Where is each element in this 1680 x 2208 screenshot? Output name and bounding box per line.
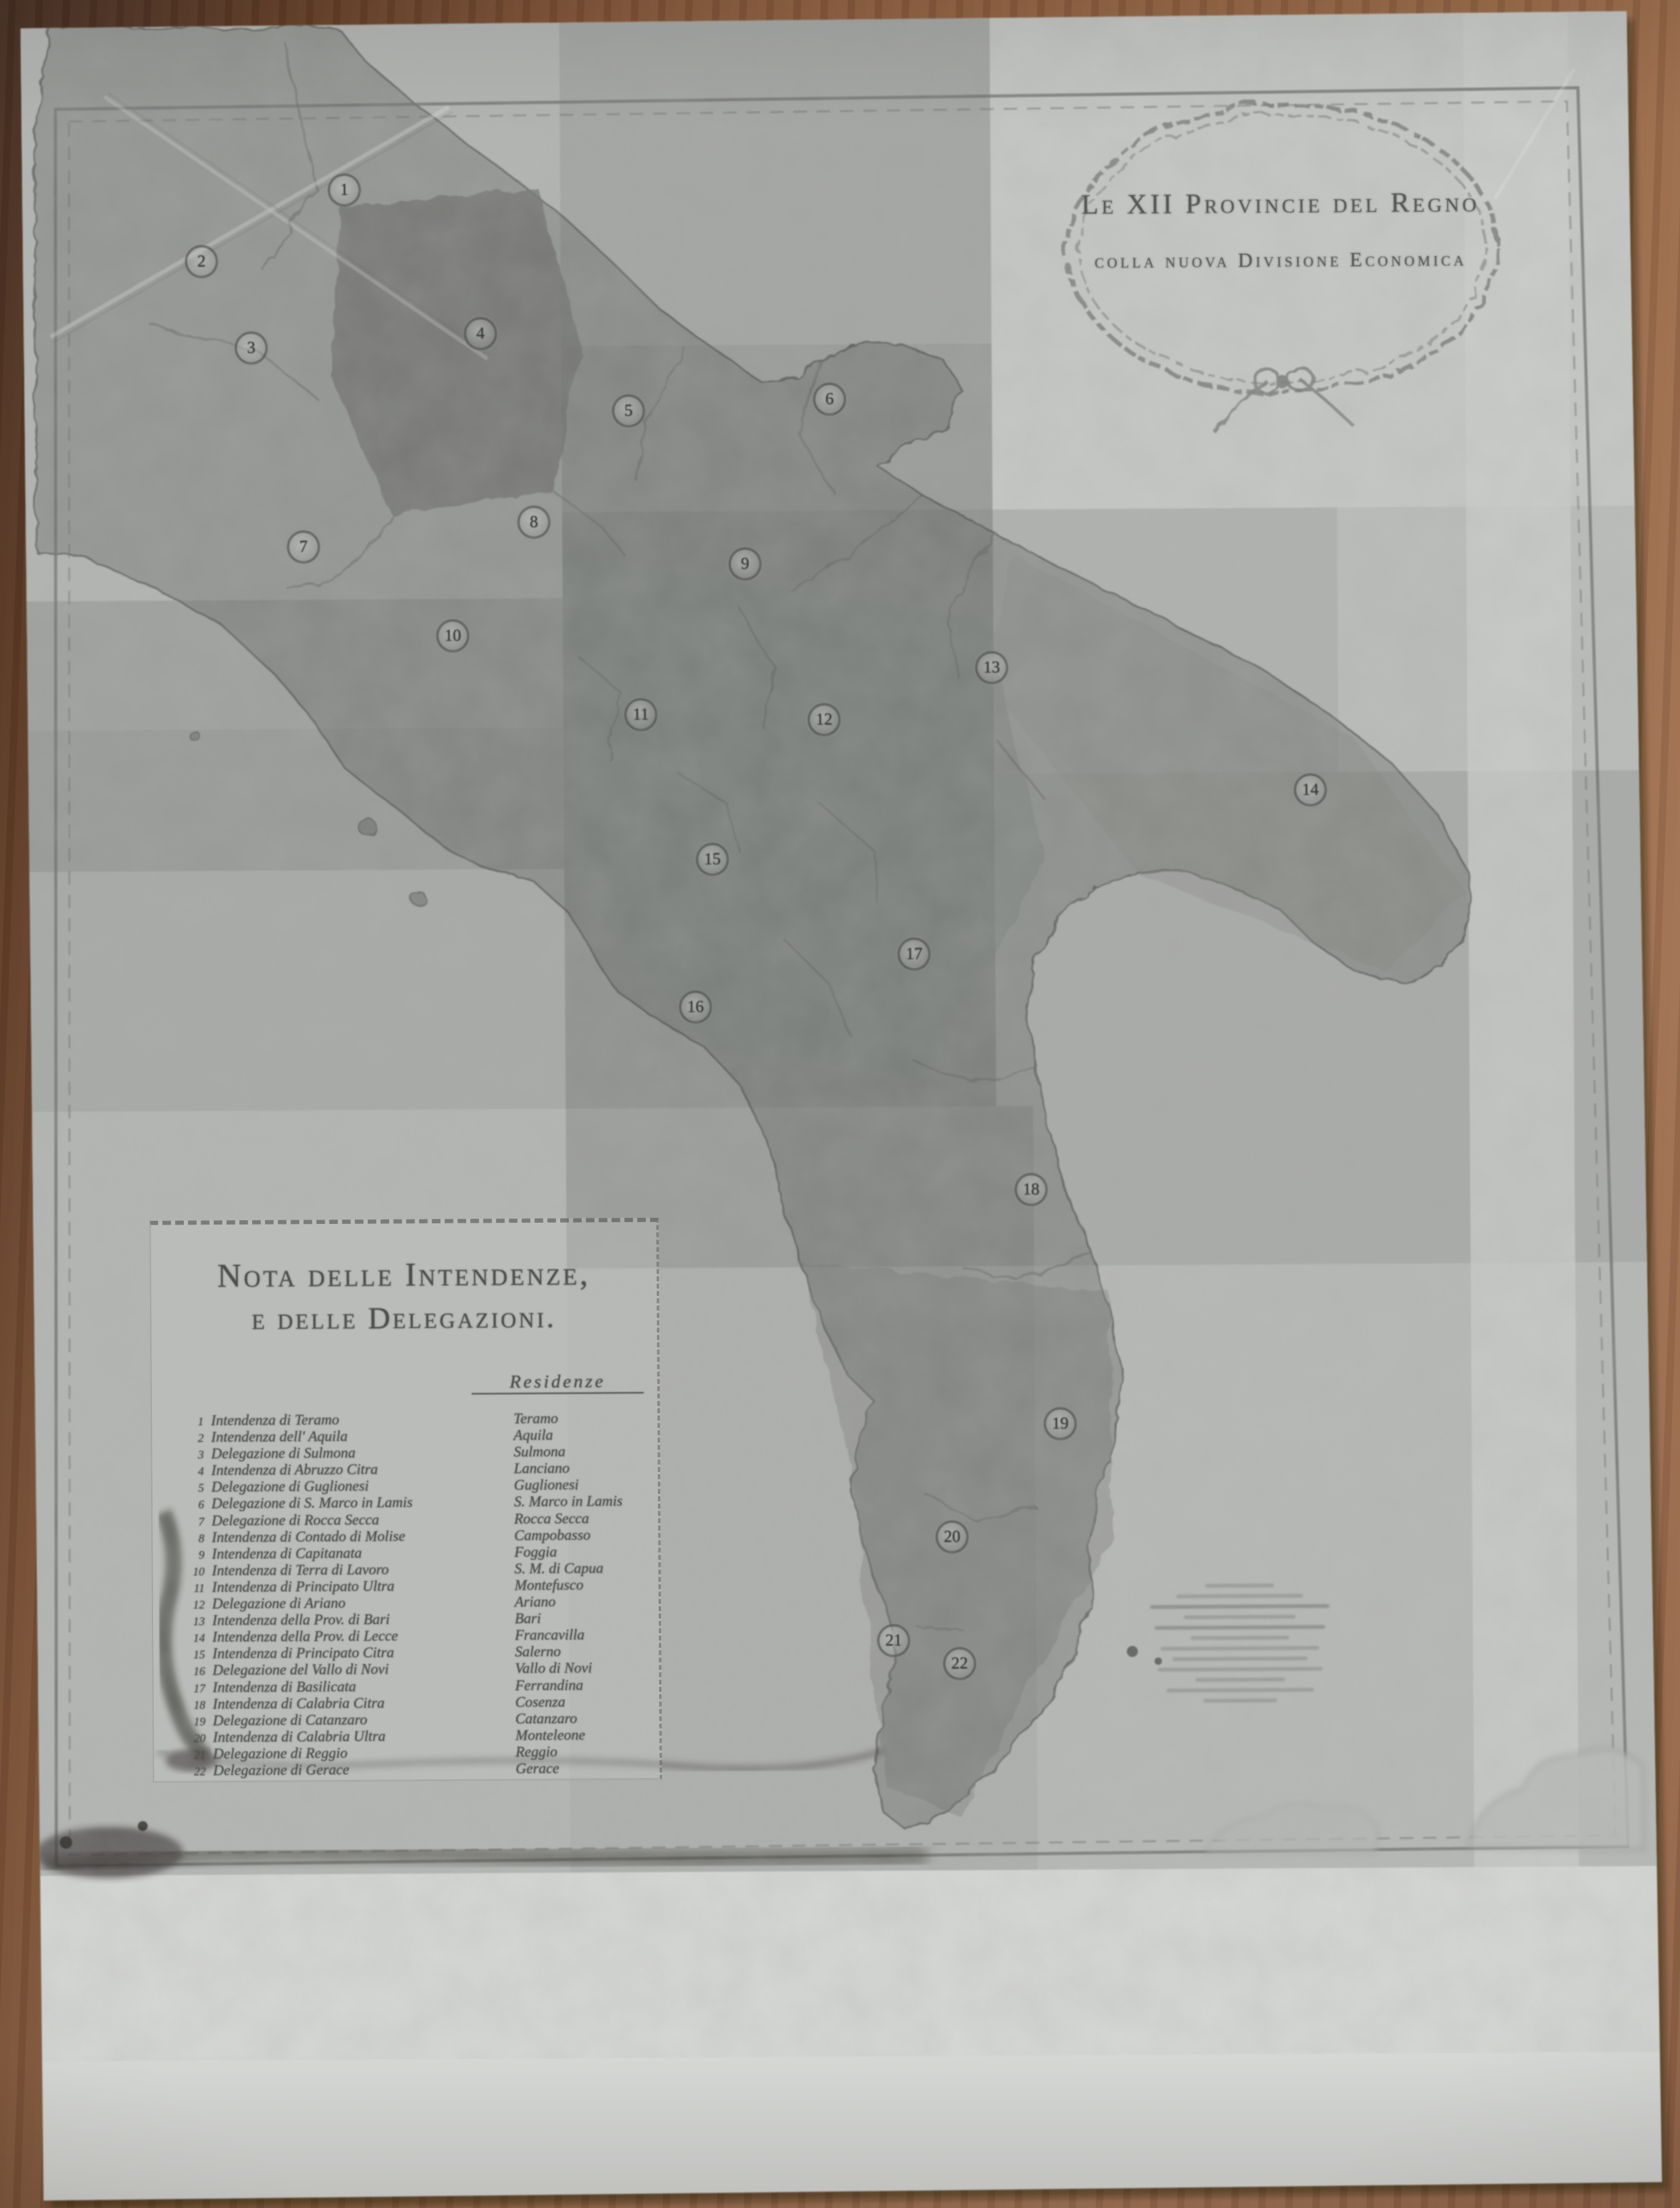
province-number-marker: 20 xyxy=(935,1520,969,1554)
province-number-marker: 11 xyxy=(624,698,657,731)
province-number-marker: 22 xyxy=(943,1647,976,1680)
legend-row-residence: Rocca Secca xyxy=(514,1510,656,1527)
legend-row-number: 14 xyxy=(183,1632,205,1646)
legend-row-number: 8 xyxy=(182,1532,204,1546)
legend-row-number: 9 xyxy=(182,1549,204,1562)
legend-row-residence: Foggia xyxy=(514,1544,656,1561)
legend-row-residence: Monteleone xyxy=(515,1727,657,1744)
illegible-text-block xyxy=(1138,1576,1343,1784)
legend-row-name: Intendenza di Capitanata xyxy=(212,1544,514,1563)
legend-row-residence: Sulmona xyxy=(513,1444,655,1461)
legend-rows: 1Intendenza di TeramoTeramo2Intendenza d… xyxy=(181,1410,657,1780)
legend-row-number: 13 xyxy=(183,1615,205,1629)
legend-row-number: 11 xyxy=(183,1582,205,1595)
province-number-marker: 1 xyxy=(328,173,361,207)
legend-row-name: Delegazione di Guglionesi xyxy=(212,1478,514,1496)
map-title-line1: Le XII Provincie del Regno xyxy=(1063,185,1497,220)
legend-row-name: Intendenza di Abruzzo Citra xyxy=(212,1461,514,1480)
legend-box: Nota delle Intendenze, e delle Delegazio… xyxy=(149,1218,662,1783)
legend-row-number: 15 xyxy=(183,1649,205,1662)
legend-row-name: Intendenza di Basilicata xyxy=(213,1678,515,1696)
legend-row-number: 20 xyxy=(183,1732,205,1745)
legend-row-number: 5 xyxy=(182,1482,204,1496)
legend-row-name: Delegazione del Vallo di Novi xyxy=(213,1661,515,1680)
legend-row-name: Delegazione di S. Marco in Lamis xyxy=(212,1495,514,1513)
legend-row-residence: Francavilla xyxy=(515,1627,656,1644)
legend-row-residence: Guglionesi xyxy=(514,1477,656,1494)
province-number-marker: 21 xyxy=(877,1624,910,1657)
legend-row-residence: Campobasso xyxy=(514,1527,656,1544)
province-number-marker: 14 xyxy=(1294,773,1327,806)
province-number-marker: 9 xyxy=(728,547,761,581)
legend-row-residence: Aquila xyxy=(513,1427,655,1444)
legend-column-header-residenze: Residenze xyxy=(472,1371,644,1395)
province-number-marker: 16 xyxy=(679,990,712,1023)
legend-row-number: 1 xyxy=(181,1415,204,1429)
legend-row-number: 21 xyxy=(183,1749,205,1762)
legend-row-residence: S. M. di Capua xyxy=(515,1560,656,1578)
legend-row-residence: Reggio xyxy=(515,1744,657,1761)
legend-row-name: Delegazione di Reggio xyxy=(213,1744,515,1763)
legend-row-residence: Montefusco xyxy=(515,1577,656,1594)
legend-row-residence: Teramo xyxy=(513,1410,655,1428)
province-number-marker: 13 xyxy=(975,651,1008,684)
province-number-marker: 7 xyxy=(287,530,320,563)
province-number-marker: 17 xyxy=(897,937,930,971)
province-number-marker: 4 xyxy=(464,317,497,350)
legend-row-name: Intendenza di Principato Ultra xyxy=(212,1578,515,1596)
legend-row-number: 18 xyxy=(183,1699,205,1712)
legend-row-name: Intendenza di Terra di Lavoro xyxy=(212,1561,515,1579)
legend-row-number: 10 xyxy=(183,1565,205,1579)
legend-row-residence: Cosenza xyxy=(515,1693,657,1710)
province-number-marker: 5 xyxy=(612,394,645,427)
legend-row-number: 2 xyxy=(181,1432,204,1445)
legend-row-name: Intendenza della Prov. di Bari xyxy=(212,1611,515,1629)
province-number-marker: 8 xyxy=(517,506,550,539)
legend-row-residence: Lanciano xyxy=(514,1460,656,1477)
legend-row-name: Intendenza di Calabria Citra xyxy=(213,1694,515,1713)
legend-row-number: 19 xyxy=(183,1715,205,1729)
legend-row-name: Intendenza dell' Aquila xyxy=(211,1428,513,1446)
legend-row-number: 3 xyxy=(181,1449,204,1463)
legend-row-number: 22 xyxy=(184,1765,206,1779)
province-number-marker: 12 xyxy=(807,703,841,736)
map-print-rotated-layer: Le XII Provincie del Regno colla nuova D… xyxy=(0,0,1680,2208)
legend-row-name: Intendenza di Teramo xyxy=(211,1411,513,1429)
legend-row-residence: Vallo di Novi xyxy=(515,1660,657,1677)
legend-row-name: Intendenza di Calabria Ultra xyxy=(213,1728,515,1746)
legend-row-residence: Bari xyxy=(515,1610,656,1627)
legend-row-residence: S. Marco in Lamis xyxy=(514,1493,656,1511)
legend-row: 22Delegazione di GeraceGerace xyxy=(184,1760,657,1780)
legend-row-name: Delegazione di Sulmona xyxy=(211,1444,513,1463)
legend-row-residence: Ariano xyxy=(515,1594,656,1611)
legend-row-name: Intendenza della Prov. di Lecce xyxy=(212,1627,515,1646)
legend-row-name: Delegazione di Ariano xyxy=(212,1594,515,1613)
province-number-marker: 3 xyxy=(234,332,267,365)
province-number-marker: 18 xyxy=(1015,1173,1048,1206)
legend-row-name: Delegazione di Catanzaro xyxy=(213,1711,515,1729)
map-title-line2: colla nuova Divisione Economica xyxy=(1064,248,1498,273)
legend-row-residence: Ferrandina xyxy=(515,1677,657,1694)
legend-title-line2: e delle Delegazioni. xyxy=(151,1298,657,1337)
province-number-marker: 19 xyxy=(1044,1407,1077,1440)
province-number-marker: 6 xyxy=(813,383,846,416)
legend-row-name: Intendenza di Principato Citra xyxy=(212,1645,515,1663)
province-number-marker: 10 xyxy=(436,619,469,653)
legend-row-name: Delegazione di Rocca Secca xyxy=(212,1511,514,1530)
legend-row-residence: Catanzaro xyxy=(515,1710,657,1728)
legend-row-number: 17 xyxy=(183,1682,205,1696)
legend-row-number: 16 xyxy=(183,1666,205,1679)
legend-row-number: 4 xyxy=(182,1466,204,1479)
legend-row-name: Delegazione di Gerace xyxy=(213,1761,516,1779)
legend-row-residence: Gerace xyxy=(516,1760,657,1777)
legend-row-number: 12 xyxy=(183,1598,205,1612)
legend-title-line1: Nota delle Intendenze, xyxy=(151,1254,656,1295)
photo-of-antique-map: Le XII Provincie del Regno colla nuova D… xyxy=(0,0,1680,2208)
legend-row-residence: Salerno xyxy=(515,1643,656,1661)
legend-row-name: Intendenza di Contado di Molise xyxy=(212,1528,514,1546)
province-number-marker: 15 xyxy=(695,843,729,876)
legend-row-number: 6 xyxy=(182,1499,204,1512)
province-number-marker: 2 xyxy=(184,245,218,278)
legend-row-number: 7 xyxy=(182,1515,204,1529)
